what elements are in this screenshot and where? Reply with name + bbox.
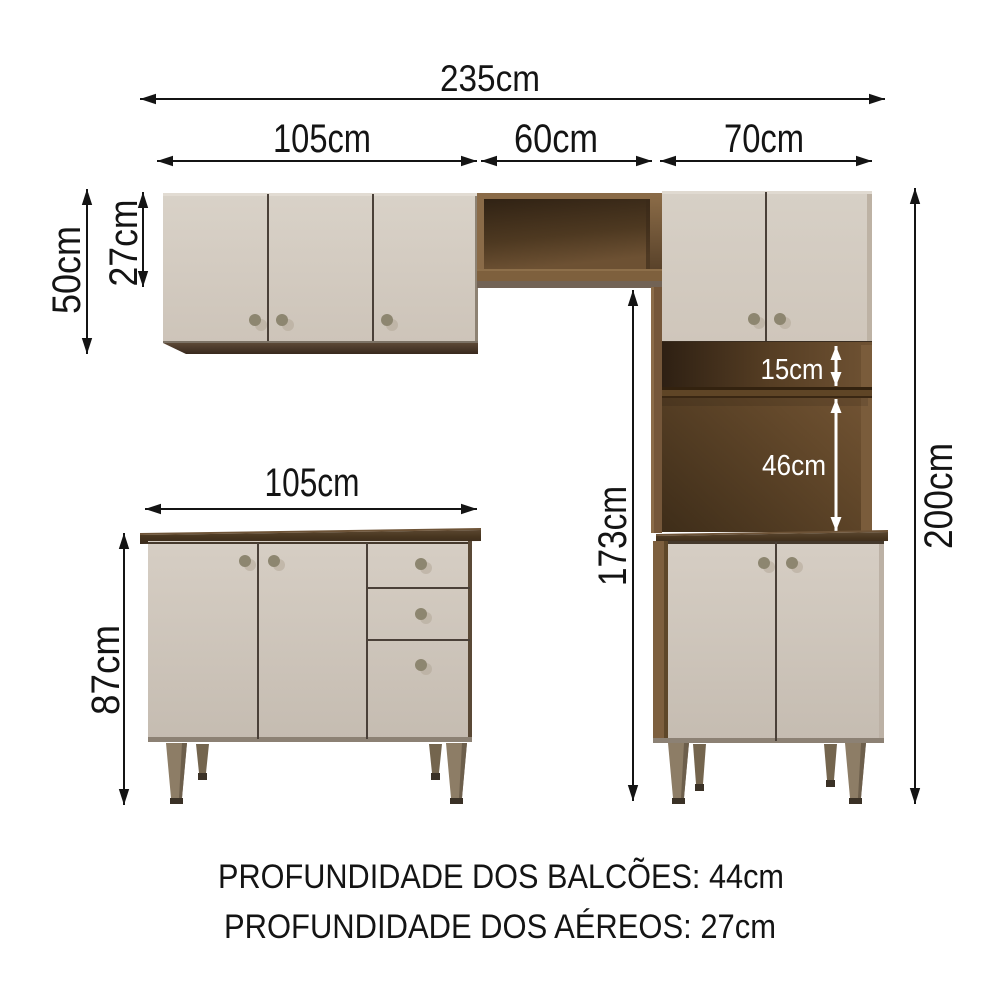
svg-text:46cm: 46cm — [762, 450, 826, 482]
svg-text:105cm: 105cm — [265, 461, 360, 505]
svg-text:173cm: 173cm — [591, 486, 635, 586]
svg-text:50cm: 50cm — [45, 226, 89, 314]
svg-text:PROFUNDIDADE DOS AÉREOS: 27cm: PROFUNDIDADE DOS AÉREOS: 27cm — [224, 908, 776, 946]
svg-text:PROFUNDIDADE DOS BALCÕES: 44cm: PROFUNDIDADE DOS BALCÕES: 44cm — [218, 858, 784, 896]
svg-text:27cm: 27cm — [102, 200, 146, 287]
svg-text:87cm: 87cm — [84, 625, 128, 715]
svg-text:15cm: 15cm — [761, 354, 824, 386]
svg-text:200cm: 200cm — [917, 443, 961, 549]
svg-text:70cm: 70cm — [724, 117, 804, 161]
svg-text:105cm: 105cm — [273, 117, 371, 161]
svg-text:60cm: 60cm — [514, 117, 598, 161]
svg-text:235cm: 235cm — [440, 58, 540, 99]
